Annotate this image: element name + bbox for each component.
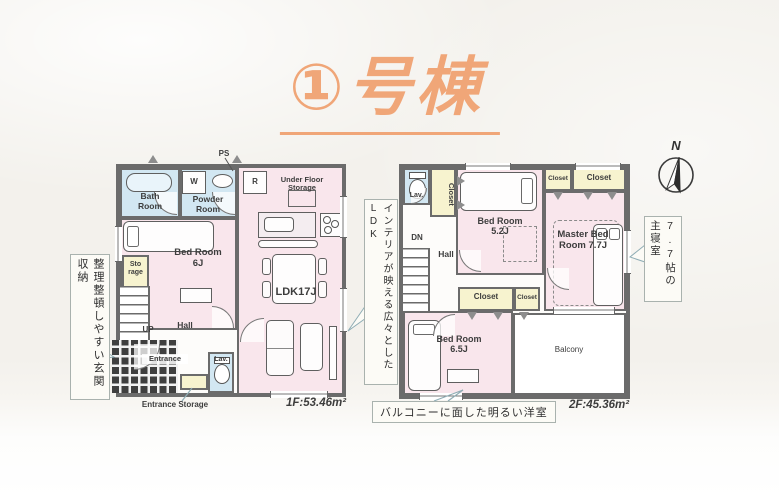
storage-label: Sto rage [123,261,148,277]
tv-board [329,326,337,380]
floorplan-1f: Bath Room Powder Room W R Under Floor St… [116,164,346,397]
stove-burner [324,226,332,234]
closet-top-large-label: Closet [573,174,625,183]
closet-door-marker [607,192,617,200]
chair [318,258,327,275]
kitchen-sink [264,217,294,232]
up-label: UP [136,326,160,335]
bedroom-6j-label: Bed Room 6J [168,248,228,269]
window [553,307,615,314]
entrance-storage-label: Entrance Storage [130,401,220,410]
closet-top-small-label: Closet [544,175,572,182]
fridge-label: R [243,178,267,187]
bed-pillow [521,178,533,204]
stove-burner [323,216,331,224]
lav-2f-label: Lav. [404,192,429,200]
window [624,230,631,274]
window [340,196,347,238]
powder-sink [212,174,233,188]
stairs-up [120,286,150,346]
hall-2f-label: Hall [431,250,461,260]
dn-label: DN [405,234,429,243]
master-bedroom-label: Master Bed Room 7.7J [555,230,611,251]
window [115,226,122,262]
closet-mid-small-label: Closet [513,294,541,301]
callout-master-bedroom: 7.7帖の主寝室 [644,216,682,302]
closet-door-marker [493,312,503,320]
lav-1f-label: Lav. [209,356,233,364]
toilet-tank [409,172,426,179]
entrance-label: Entrance [142,354,188,364]
chair [262,258,271,275]
compass-icon [654,153,698,197]
balcony-label: Balcony [539,346,599,355]
hall-1f-label: Hall [170,321,200,331]
bedroom-52-label: Bed Room 5.2J [471,216,529,236]
stove-burner [331,220,339,228]
bedroom-65-label: Bed Room 6.5J [431,334,487,354]
ldk-label: LDK17J [266,286,326,298]
closet-door-marker [457,176,465,186]
desk [180,288,212,303]
bath-label: Bath Room [128,192,172,211]
toilet-bowl [214,364,230,384]
floor2-area-label: 2F:45.36m² [566,399,632,412]
sofa [266,320,294,376]
window [575,163,621,170]
callout-ldk: インテリアが映える広々としたLDK [364,199,398,385]
closet-door-marker [583,192,593,200]
window [465,163,511,170]
closet-mid-large-label: Closet [461,293,511,302]
closet-door-marker [467,312,477,320]
bed-pillow [127,226,139,247]
compass-north-label: N [650,138,702,153]
counter-bar [258,240,318,248]
sofa-ottoman [300,323,323,371]
callout-entrance-storage: 整理整頓しやすい玄関収納 [70,254,110,400]
closet-door-marker [519,312,529,320]
floorplan-2f: Lav. Closet Bed Room 5.2J Closet Closet … [399,164,630,399]
under-floor-storage-label: Under Floor Storage [276,176,328,193]
closet-door-marker [553,192,563,200]
washer-label: W [182,178,206,187]
floor1-area-label: 1F:53.46m² [285,397,347,410]
compass: N [650,138,702,202]
closet-vertical-label: Closet [431,174,455,214]
stairs-down [403,248,430,311]
floorplan-page: ①号棟 N [0,0,779,498]
desk [447,369,479,383]
ps-label: PS [212,150,236,159]
page-title: ①号棟 [279,36,499,135]
closet-door-marker [457,200,465,210]
vent-marker [148,155,158,163]
callout-bright-room: バルコニーに面した明るい洋室 [372,401,556,423]
powder-label: Powder Room [182,195,234,214]
window [340,288,347,332]
entrance-storage-box [180,374,208,390]
window [419,393,463,400]
bathtub [126,173,172,192]
